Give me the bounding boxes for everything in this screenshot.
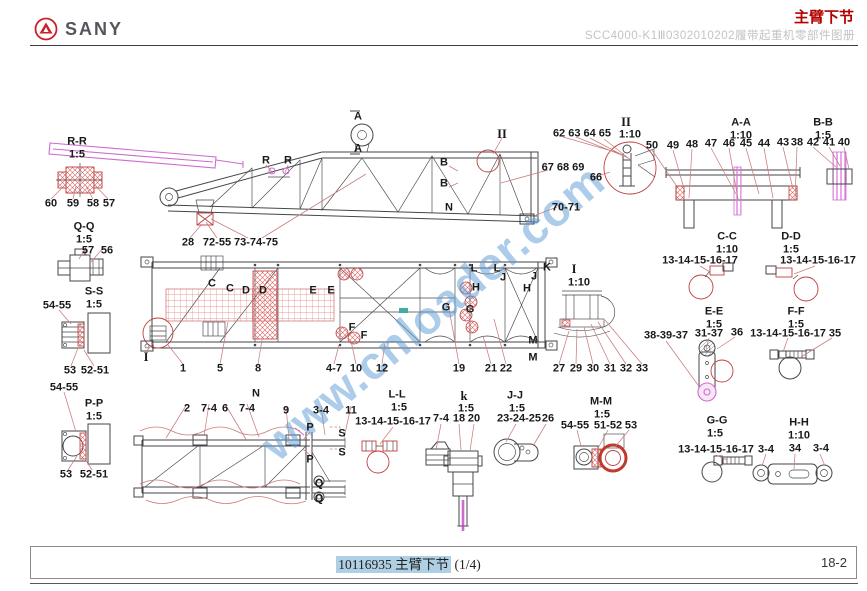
callout-47: 47: [705, 139, 717, 150]
callout-h: H: [523, 284, 531, 295]
callout-1: 1: [180, 364, 186, 375]
callout-35: 35: [829, 329, 841, 340]
callout-k: k: [461, 390, 468, 403]
callout-40: 40: [838, 138, 850, 149]
callout-54-55: 54-55: [43, 301, 71, 312]
callout-27: 27: [553, 364, 565, 375]
callout-m-m: M-M: [590, 397, 612, 408]
callout-13-14-15-16-17: 13-14-15-16-17: [678, 445, 754, 456]
callout-c: C: [208, 279, 216, 290]
callout-38-39-37: 38-39-37: [644, 331, 688, 342]
callout-l-l: L-L: [388, 390, 405, 401]
callout-18: 18: [453, 414, 465, 425]
callout-9: 9: [283, 406, 289, 417]
doc-code-highlight[interactable]: 10116935 主臂下节: [336, 556, 451, 573]
callout-7-4: 7-4: [239, 404, 255, 415]
callout-3-4: 3-4: [813, 444, 829, 455]
callout-p: P: [306, 423, 313, 434]
callout-10: 10: [350, 364, 362, 375]
callout-21: 21: [485, 364, 497, 375]
callout-s: S: [338, 448, 345, 459]
callout-e: E: [327, 286, 334, 297]
callout-layer: R-R1:560595857Q-Q1:55756S-S1:554-555352-…: [0, 0, 867, 591]
callout-8: 8: [255, 364, 261, 375]
callout-g-g: G-G: [707, 416, 728, 427]
callout-45: 45: [740, 139, 752, 150]
callout-20: 20: [468, 414, 480, 425]
callout-s-s: S-S: [85, 287, 103, 298]
callout-13-14-15-16-17: 13-14-15-16-17: [662, 256, 738, 267]
callout-46: 46: [723, 139, 735, 150]
callout-k: K: [543, 263, 551, 274]
callout-23-24-25: 23-24-25: [497, 414, 541, 425]
callout-72-55: 72-55: [203, 238, 231, 249]
callout-a-a: A-A: [731, 118, 751, 129]
callout-53: 53: [625, 421, 637, 432]
callout-b-b: B-B: [813, 118, 833, 129]
callout-g: G: [466, 305, 475, 316]
document-reference: 10116935 主臂下节 (1/4): [336, 553, 481, 573]
callout-34: 34: [789, 444, 801, 455]
callout-i: I: [144, 351, 149, 364]
callout-57: 57: [103, 199, 115, 210]
callout-53: 53: [60, 470, 72, 481]
callout-c: C: [226, 284, 234, 295]
callout-n: N: [252, 389, 260, 400]
callout-d-d: D-D: [781, 232, 801, 243]
callout-58: 58: [87, 199, 99, 210]
callout-1-5: 1:5: [391, 403, 407, 414]
callout-50: 50: [646, 141, 658, 152]
callout-26: 26: [542, 414, 554, 425]
callout-f: F: [349, 323, 356, 334]
footer-bar: 10116935 主臂下节 (1/4) 18-2: [30, 546, 857, 579]
callout-q: Q: [315, 494, 324, 505]
callout-6: 6: [222, 404, 228, 415]
callout-s: S: [338, 429, 345, 440]
callout-1-5: 1:5: [69, 150, 85, 161]
callout-33: 33: [636, 364, 648, 375]
callout-54-55: 54-55: [50, 383, 78, 394]
callout-1-5: 1:5: [86, 300, 102, 311]
callout-h-h: H-H: [789, 418, 809, 429]
callout-36: 36: [731, 328, 743, 339]
callout-b: B: [440, 179, 448, 190]
doc-code: 10116935: [338, 557, 392, 572]
callout-g: G: [442, 303, 451, 314]
callout-54-55: 54-55: [561, 421, 589, 432]
callout-67-68-69: 67 68 69: [542, 163, 585, 174]
callout-5: 5: [217, 364, 223, 375]
callout-13-14-15-16-17: 13-14-15-16-17: [750, 329, 826, 340]
callout-r: R: [262, 156, 270, 167]
callout-53: 53: [64, 366, 76, 377]
callout-r: R: [284, 156, 292, 167]
callout-38: 38: [791, 138, 803, 149]
callout-1-5: 1:5: [86, 412, 102, 423]
callout-m: M: [528, 336, 537, 347]
callout-1-10: 1:10: [788, 431, 810, 442]
callout-b: B: [440, 158, 448, 169]
callout-l: L: [471, 264, 478, 275]
callout-62-63-64-65: 62 63 64 65: [553, 129, 611, 140]
callout-51-52: 51-52: [594, 421, 622, 432]
callout-12: 12: [376, 364, 388, 375]
callout-28: 28: [182, 238, 194, 249]
callout-56: 56: [101, 246, 113, 257]
callout-f: F: [361, 331, 368, 342]
callout-30: 30: [587, 364, 599, 375]
page-fraction: (1/4): [455, 557, 481, 572]
callout-d: D: [242, 286, 250, 297]
callout-31-37: 31-37: [695, 329, 723, 340]
callout-e-e: E-E: [705, 307, 723, 318]
callout-n: N: [445, 203, 453, 214]
callout-c-c: C-C: [717, 232, 737, 243]
callout-70-71: 70-71: [552, 203, 580, 214]
callout-h: H: [472, 283, 480, 294]
callout-66: 66: [590, 173, 602, 184]
callout-73-74-75: 73-74-75: [234, 238, 278, 249]
callout-p: P: [306, 455, 313, 466]
callout-q-q: Q-Q: [74, 222, 95, 233]
callout-44: 44: [758, 139, 770, 150]
callout-32: 32: [620, 364, 632, 375]
callout-4-7: 4-7: [326, 364, 342, 375]
callout-ii: II: [497, 128, 507, 141]
callout-7-4: 7-4: [201, 404, 217, 415]
callout-49: 49: [667, 141, 679, 152]
callout-52-51: 52-51: [80, 470, 108, 481]
callout-22: 22: [500, 364, 512, 375]
callout-13-14-15-16-17: 13-14-15-16-17: [355, 417, 431, 428]
callout-r-r: R-R: [67, 137, 87, 148]
callout-48: 48: [686, 140, 698, 151]
callout-3-4: 3-4: [313, 406, 329, 417]
callout-i: I: [572, 263, 577, 276]
callout-m: M: [528, 353, 537, 364]
callout-1-10: 1:10: [619, 130, 641, 141]
callout-j-j: J-J: [507, 391, 523, 402]
callout-a: A: [354, 112, 362, 123]
callout-f-f: F-F: [787, 307, 804, 318]
callout-a: A: [354, 144, 362, 155]
callout-e: E: [309, 286, 316, 297]
callout-59: 59: [67, 199, 79, 210]
callout-2: 2: [184, 404, 190, 415]
callout-52-51: 52-51: [81, 366, 109, 377]
callout-60: 60: [45, 199, 57, 210]
callout-ii: II: [621, 116, 631, 129]
callout-j: J: [500, 273, 506, 284]
callout-p-p: P-P: [85, 399, 103, 410]
callout-7-4: 7-4: [433, 414, 449, 425]
callout-j: J: [531, 272, 537, 283]
doc-title: 主臂下节: [395, 557, 449, 572]
callout-42: 42: [807, 138, 819, 149]
callout-13-14-15-16-17: 13-14-15-16-17: [780, 256, 856, 267]
callout-1-10: 1:10: [568, 278, 590, 289]
callout-31: 31: [604, 364, 616, 375]
callout-1-5: 1:5: [707, 429, 723, 440]
callout-43: 43: [777, 138, 789, 149]
callout-3-4: 3-4: [758, 445, 774, 456]
callout-d: D: [259, 286, 267, 297]
page-number: 18-2: [821, 547, 847, 578]
callout-41: 41: [823, 138, 835, 149]
callout-19: 19: [453, 364, 465, 375]
callout-29: 29: [570, 364, 582, 375]
callout-q: Q: [315, 479, 324, 490]
callout-57: 57: [82, 246, 94, 257]
